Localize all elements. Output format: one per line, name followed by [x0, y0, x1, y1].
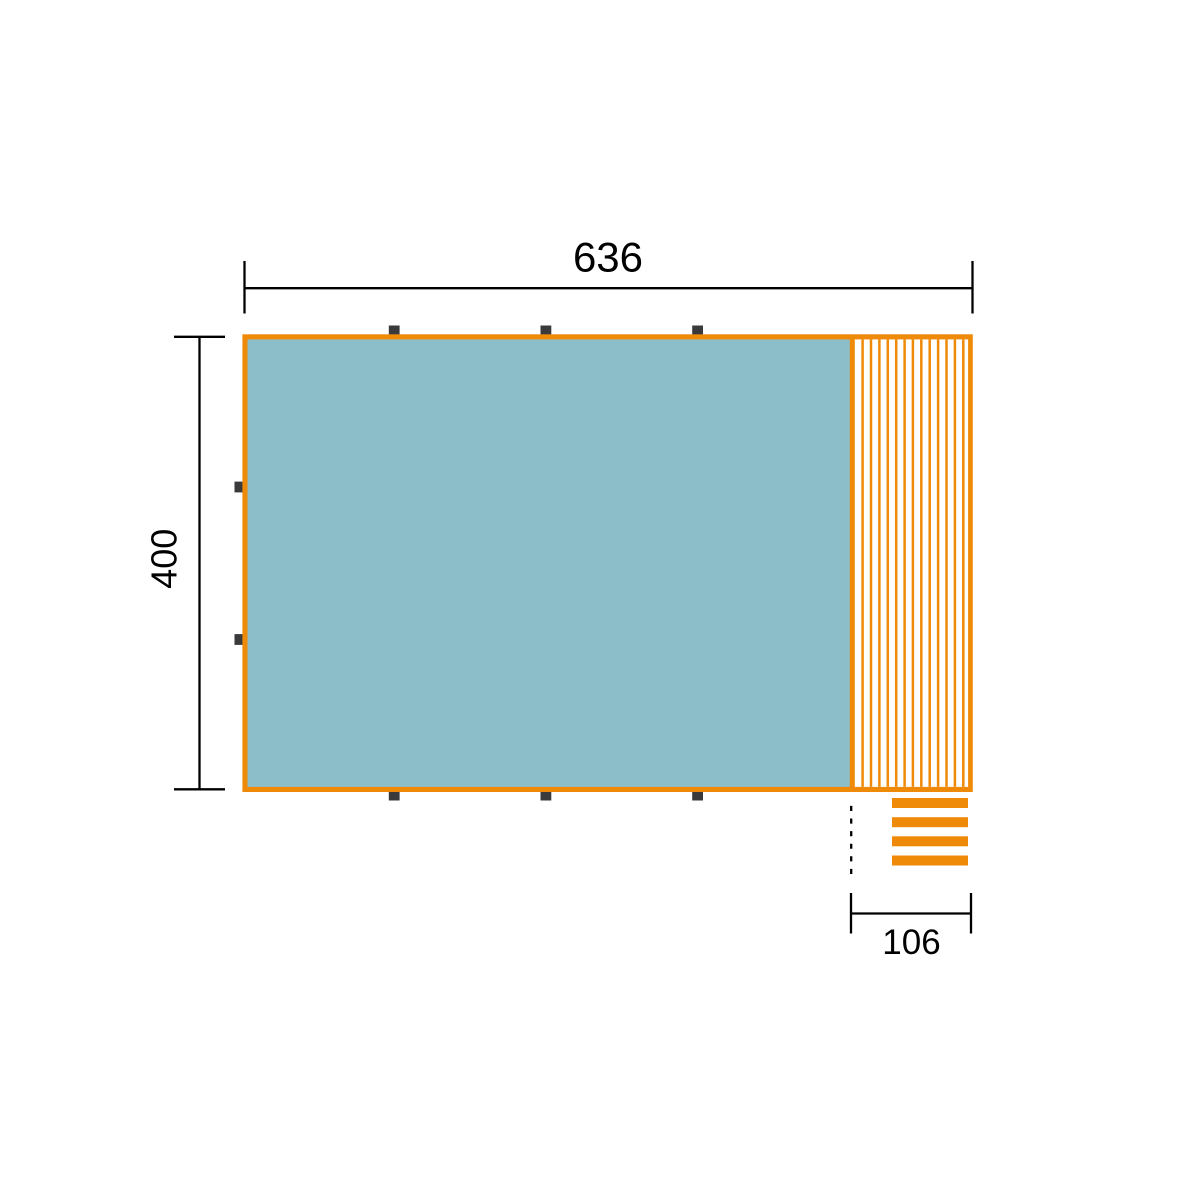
svg-text:400: 400: [144, 529, 185, 589]
svg-text:636: 636: [573, 233, 643, 280]
svg-text:106: 106: [882, 923, 940, 962]
